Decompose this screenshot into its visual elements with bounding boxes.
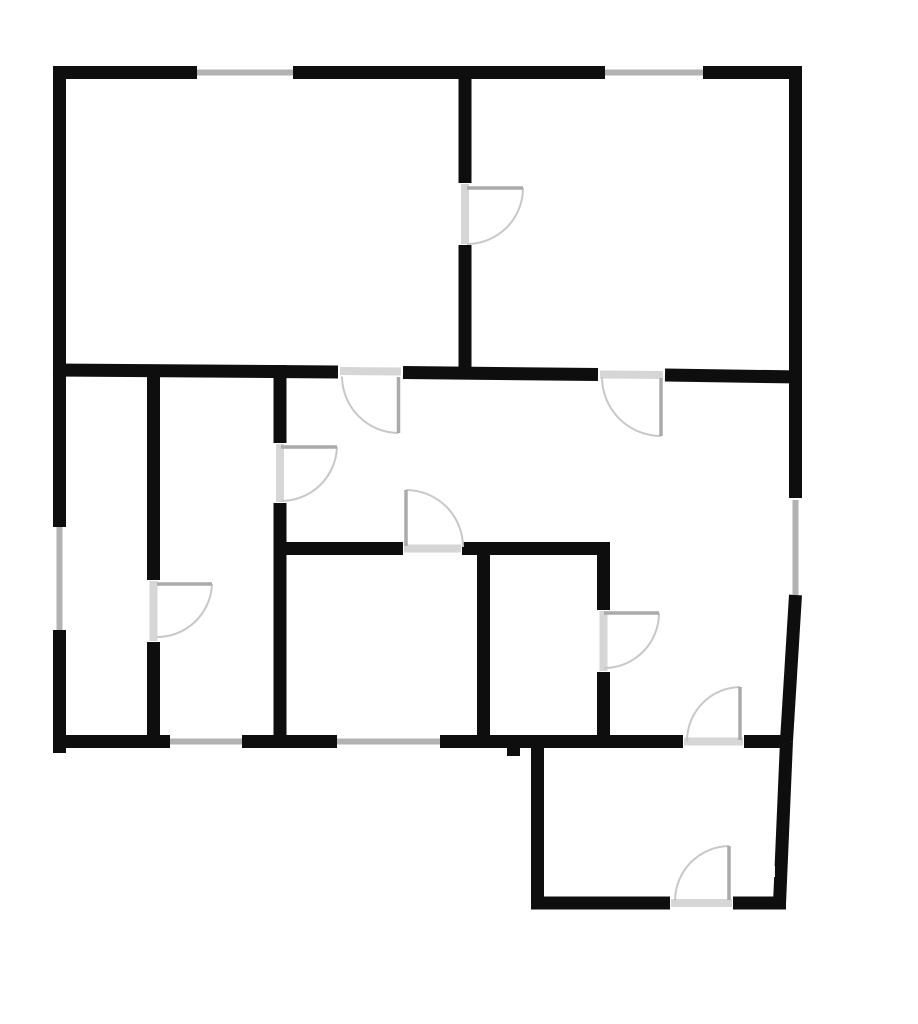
- mid-wall-center: [403, 373, 598, 375]
- door-left-room-arc: [157, 584, 212, 637]
- mid-wall-left: [53, 370, 338, 372]
- door-bottom-left-room-arc: [406, 490, 463, 547]
- right-wall-lower-slant: [780, 741, 787, 904]
- door-between-top-rooms-arc: [467, 188, 523, 244]
- floor-plan-svg: [0, 0, 918, 1024]
- threshold-top-left-room: [340, 371, 401, 372]
- door-entry-arc: [675, 846, 729, 901]
- door-vestibule-top-arc: [687, 687, 740, 741]
- door-small-room-arc: [604, 613, 659, 668]
- right-wall-notch: [766, 866, 775, 877]
- door-top-left-room-arc: [342, 377, 399, 434]
- right-wall-mid-slant: [787, 595, 796, 741]
- floor-plan: [0, 0, 918, 1024]
- threshold-top-right-room: [600, 375, 663, 376]
- door-hall-middle-room-arc: [281, 447, 337, 501]
- mid-wall-right: [665, 375, 800, 377]
- door-top-right-room-arc: [602, 377, 661, 436]
